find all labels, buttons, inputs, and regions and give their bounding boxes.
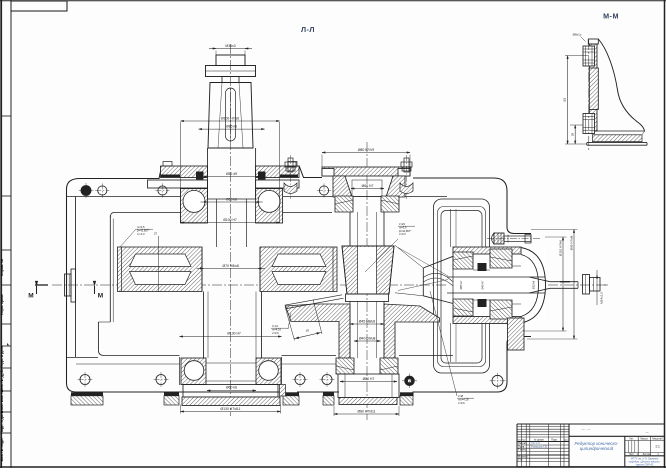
svg-text:t=1,6: t=1,6: [272, 324, 279, 328]
svg-text:Листов: Листов: [643, 453, 651, 456]
svg-text:№ докум.: № докум.: [534, 438, 545, 441]
svg-text:Ø95 H7/d8: Ø95 H7/d8: [570, 235, 574, 250]
svg-text:Масса: Масса: [640, 438, 648, 441]
svg-text:Ø52 d9: Ø52 d9: [226, 172, 237, 176]
svg-text:x=-0,3: x=-0,3: [137, 232, 145, 236]
svg-text:Ø85 k6: Ø85 k6: [226, 125, 237, 129]
svg-text:Т.контр.: Т.контр.: [518, 448, 528, 452]
svg-text:Редуктор коническо-: Редуктор коническо-: [575, 441, 619, 446]
svg-text:Ø80 H7: Ø80 H7: [363, 377, 375, 381]
svg-text:x=0,6: x=0,6: [458, 401, 465, 405]
svg-text:Ø45 H8/u8: Ø45 H8/u8: [359, 320, 376, 324]
svg-text:27: 27: [154, 232, 158, 236]
svg-text:x=0,3: x=0,3: [399, 232, 406, 236]
svg-text:М: М: [28, 293, 33, 300]
svg-text:Лист: Лист: [521, 439, 526, 441]
svg-text:—: —: [646, 430, 649, 434]
svg-text:группа СМ9-42: группа СМ9-42: [636, 464, 654, 467]
svg-text:Ø100 H7: Ø100 H7: [223, 218, 237, 222]
svg-text:Ø40 H7: Ø40 H7: [481, 280, 485, 289]
svg-text:Подп.: Подп.: [551, 438, 558, 441]
svg-text:Инв. № подл.: Инв. № подл.: [0, 438, 4, 462]
svg-text:Утв.: Утв.: [518, 458, 523, 462]
svg-text:Ø70 H8/u8: Ø70 H8/u8: [223, 264, 240, 268]
svg-text:Ø80 К7/V9: Ø80 К7/V9: [358, 148, 374, 152]
svg-text:Подп. и дата: Подп. и дата: [0, 410, 4, 433]
svg-text:Масштаб: Масштаб: [652, 438, 663, 441]
svg-text:Ромашов Г.В.: Ромашов Г.В.: [531, 444, 548, 448]
svg-text:М: М: [98, 293, 103, 300]
svg-text:Ø60 H7: Ø60 H7: [362, 184, 374, 188]
svg-text:Справ. №: Справ. №: [0, 259, 4, 276]
svg-text:x=0,6: x=0,6: [272, 331, 279, 335]
svg-text:z=23: z=23: [399, 222, 405, 226]
svg-text:1:1: 1:1: [655, 445, 660, 449]
svg-text:z=Ø: z=Ø: [458, 394, 463, 398]
svg-text:Ø60 k6: Ø60 k6: [226, 386, 237, 390]
svg-text:цилиндрический: цилиндрический: [580, 446, 614, 451]
svg-text:Лист: Лист: [629, 453, 635, 456]
svg-text:m=3,5: m=3,5: [137, 225, 145, 229]
svg-text:Ø80 H7/d11: Ø80 H7/d11: [357, 410, 375, 414]
svg-text:— . —: — . —: [582, 427, 591, 431]
svg-text:Перв. прим.: Перв. прим.: [0, 294, 4, 315]
svg-text:Инв. № дубл.: Инв. № дубл.: [0, 368, 4, 392]
svg-text:Лит.: Лит.: [629, 438, 634, 441]
svg-text:93: 93: [563, 98, 567, 102]
svg-text:Ø130 H7/d11: Ø130 H7/d11: [221, 407, 241, 411]
svg-text:Ø52 k6: Ø52 k6: [532, 280, 536, 289]
svg-text:β=42,857°: β=42,857°: [399, 229, 411, 233]
svg-text:28: 28: [571, 133, 575, 137]
svg-text:Взам. инв. №: Взам. инв. №: [0, 390, 4, 414]
svg-text:Ø85 H7: Ø85 H7: [459, 280, 463, 289]
svg-text:Л-Л: Л-Л: [301, 25, 315, 34]
svg-text:Ø8х1с: Ø8х1с: [573, 33, 582, 37]
svg-text:Ø130 H7: Ø130 H7: [227, 332, 241, 336]
svg-text:Подп. и дата: Подп. и дата: [0, 345, 4, 368]
svg-text:Дата: Дата: [564, 439, 570, 441]
svg-text:М-М: М-М: [603, 12, 619, 21]
svg-text:Ø50 k6: Ø50 k6: [226, 198, 237, 202]
svg-text:М24х1,5: М24х1,5: [600, 292, 604, 304]
svg-text:Ø110 H7/h6: Ø110 H7/h6: [559, 240, 563, 256]
svg-text:Ø100 H7/s6: Ø100 H7/s6: [221, 117, 239, 121]
svg-text:M36х3: M36х3: [225, 44, 235, 48]
svg-text:Ø40 D9/u8: Ø40 D9/u8: [359, 337, 376, 341]
